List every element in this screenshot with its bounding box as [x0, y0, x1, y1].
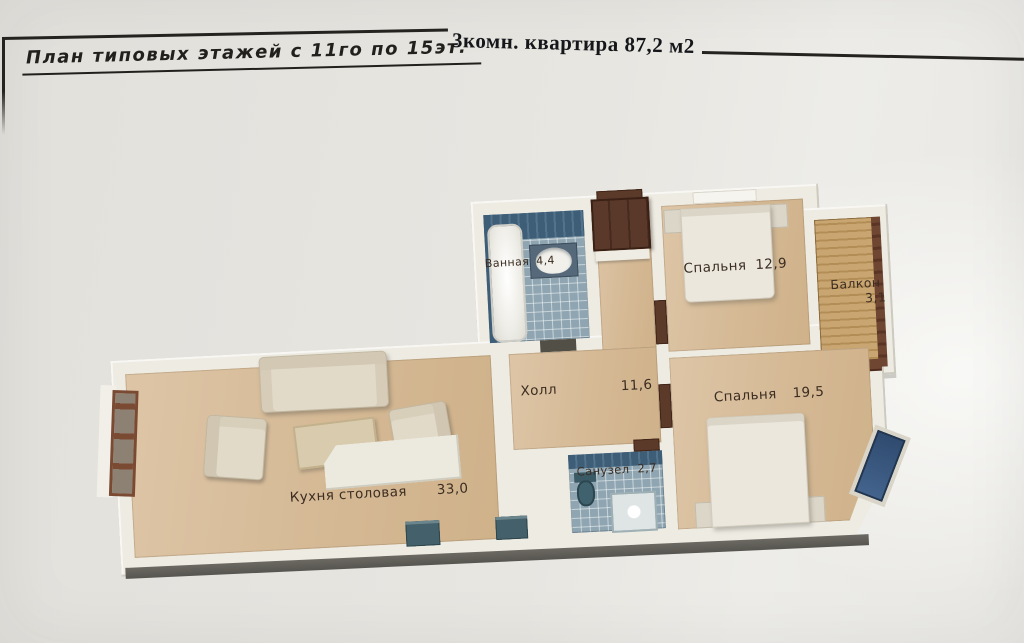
bedroom2-door	[658, 384, 672, 429]
room-area: 4,4	[536, 254, 555, 268]
sheet-title: План типовых этажей с 11го по 15эт.	[22, 36, 482, 75]
kitchen-window	[109, 390, 139, 497]
frame-right-line	[702, 51, 1024, 60]
room-area: 2,7	[637, 461, 657, 476]
room-area: 11,6	[620, 377, 652, 395]
bedroom1-nightstand-right	[769, 203, 788, 228]
shower-tray	[610, 491, 658, 533]
bedroom1-door	[654, 300, 668, 345]
frame-left-line	[2, 37, 5, 135]
floor-plan: Ванная 4,4 Спальня 12,9 Балкон 3,1	[103, 175, 921, 586]
sofa	[258, 351, 389, 414]
wc-door	[633, 438, 660, 451]
bedroom1-bed	[680, 204, 775, 303]
entry-wardrobe	[591, 197, 652, 252]
room-area: 12,9	[755, 255, 787, 273]
room-area: 33,0	[436, 480, 468, 498]
kitchen-appliance-1	[405, 520, 440, 547]
kitchen-appliance-2	[495, 515, 528, 540]
room-area: 3,1	[865, 289, 887, 305]
bedroom2-bed	[706, 413, 810, 528]
armchair-left	[203, 415, 267, 481]
room-label-balcony: Балкон 3,1	[807, 273, 904, 308]
photographed-plan-sheet: План типовых этажей с 11го по 15эт. 3ком…	[0, 0, 1024, 643]
room-name: Санузел	[576, 462, 629, 479]
room-name: Спальня	[683, 258, 747, 277]
room-area: 19,5	[792, 384, 824, 402]
apartment-title: 3комн. квартира 87,2 м2	[452, 28, 695, 59]
room-name: Холл	[520, 382, 557, 400]
toilet-bowl	[576, 480, 595, 507]
room-name: Спальня	[713, 386, 777, 405]
room-name: Ванная	[484, 255, 529, 270]
bathtub	[487, 223, 528, 343]
